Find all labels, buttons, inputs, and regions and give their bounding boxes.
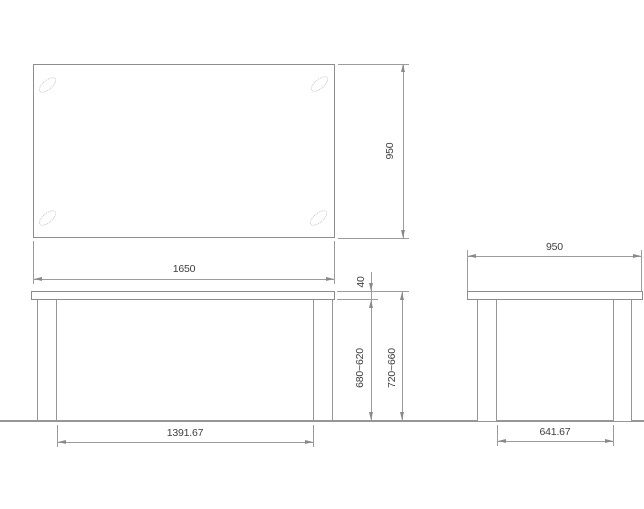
dimension-line (402, 292, 403, 420)
tabletop-plan-outline (33, 64, 335, 238)
dimension-line (498, 441, 613, 442)
front-right-leg (313, 300, 333, 421)
dimension-line (34, 279, 334, 280)
arrowhead-left (468, 254, 476, 258)
dimension-label-950-side: 950 (467, 241, 642, 253)
dimension-label-1391-67: 1391.67 (57, 427, 313, 439)
extension-line (337, 291, 409, 292)
arrowhead-right (326, 277, 334, 281)
technical-drawing-canvas: 1650 950 40 680~620 720~660 (0, 0, 644, 509)
dimension-line (371, 272, 372, 420)
arrowhead-left (58, 440, 66, 444)
front-left-leg (37, 300, 57, 421)
dimension-line (58, 442, 313, 443)
tabletop-front-outline (31, 291, 335, 300)
dimension-label-40: 40 (355, 270, 367, 294)
arrowhead-right (605, 439, 613, 443)
ground-line (0, 420, 644, 422)
arrowhead-right (633, 254, 641, 258)
extension-line (338, 64, 409, 65)
dimension-line (468, 256, 641, 257)
arrowhead-up (369, 300, 373, 308)
dimension-label-720-660: 720~660 (386, 340, 398, 396)
extension-line (613, 425, 614, 446)
dimension-label-680-620: 680~620 (354, 340, 366, 396)
arrowhead-down (401, 230, 405, 238)
extension-line (641, 250, 642, 291)
arrowhead-left (498, 439, 506, 443)
dimension-label-1650: 1650 (33, 263, 335, 275)
arrowhead-down (369, 412, 373, 420)
arrowhead-right (305, 440, 313, 444)
side-right-leg (613, 300, 632, 421)
dimension-line (403, 65, 404, 238)
dimension-label-950-depth: 950 (384, 131, 396, 171)
side-left-leg (477, 300, 497, 421)
dimension-label-641-67: 641.67 (497, 426, 613, 438)
arrowhead-up (400, 292, 404, 300)
arrowhead-left (34, 277, 42, 281)
extension-line (313, 425, 314, 447)
arrowhead-up (401, 64, 405, 72)
extension-line (338, 238, 409, 239)
tabletop-side-outline (467, 291, 643, 300)
arrowhead-down (400, 412, 404, 420)
arrowhead-down (369, 283, 373, 291)
